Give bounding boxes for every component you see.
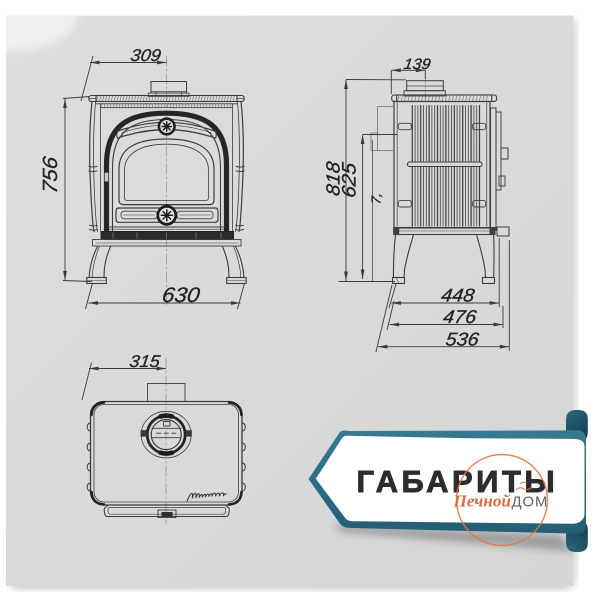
svg-text:756: 756 (39, 155, 62, 195)
svg-text:630: 630 (161, 283, 202, 307)
svg-text:625: 625 (339, 161, 360, 199)
svg-text:ДОМ: ДОМ (512, 495, 549, 511)
svg-text:7,: 7, (369, 192, 383, 206)
svg-text:315: 315 (128, 352, 161, 371)
svg-text:476: 476 (442, 308, 478, 328)
svg-text:139: 139 (403, 56, 432, 72)
svg-text:536: 536 (444, 330, 480, 350)
svg-text:448: 448 (440, 286, 476, 306)
svg-text:309: 309 (129, 46, 162, 65)
svg-text:Печной: Печной (453, 492, 512, 511)
